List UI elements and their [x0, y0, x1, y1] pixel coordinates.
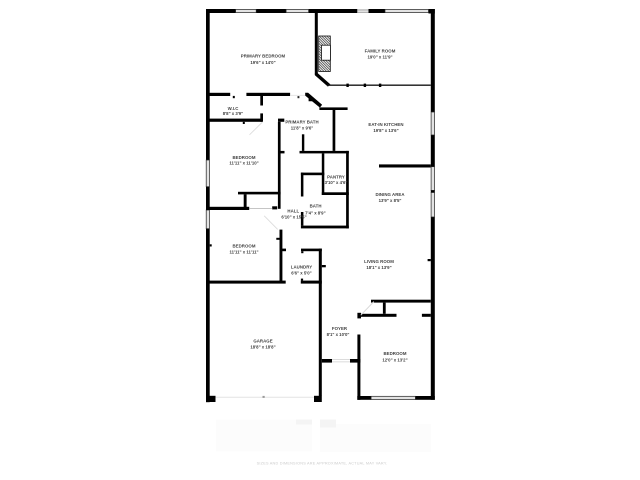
svg-text:GARAGE: GARAGE [253, 339, 272, 344]
svg-text:PANTRY: PANTRY [327, 174, 345, 179]
svg-text:11'11" x 11'10": 11'11" x 11'10" [229, 160, 258, 165]
svg-text:DINING AREA: DINING AREA [375, 192, 405, 197]
svg-text:18'8" x 18'8": 18'8" x 18'8" [250, 345, 275, 350]
svg-text:6'6" x 5'0": 6'6" x 5'0" [291, 271, 311, 276]
svg-text:8'8" x 3'9": 8'8" x 3'9" [223, 111, 243, 116]
svg-text:8'1" x 10'0": 8'1" x 10'0" [327, 332, 350, 337]
svg-text:BATH: BATH [310, 203, 322, 208]
svg-text:PRIMARY BATH: PRIMARY BATH [285, 120, 318, 125]
svg-text:PRIMARY BEDROOM: PRIMARY BEDROOM [241, 54, 286, 59]
svg-text:BEDROOM: BEDROOM [383, 351, 406, 356]
svg-text:18'1" x 13'9": 18'1" x 13'9" [366, 265, 391, 270]
svg-text:13'9" x 8'5": 13'9" x 8'5" [379, 198, 402, 203]
svg-text:19'6" x 14'0": 19'6" x 14'0" [250, 60, 275, 65]
svg-text:19'0" x 11'9": 19'0" x 11'9" [368, 54, 393, 59]
svg-text:11'8" x 9'6": 11'8" x 9'6" [291, 126, 314, 131]
svg-text:SIZES AND DIMENSIONS ARE APPRO: SIZES AND DIMENSIONS ARE APPROXIMATE, AC… [257, 462, 388, 466]
svg-text:BEDROOM: BEDROOM [232, 244, 255, 249]
svg-text:LAUNDRY: LAUNDRY [291, 265, 312, 270]
svg-text:6'10" x 15'5": 6'10" x 15'5" [281, 215, 306, 220]
svg-text:7'4" x 8'9": 7'4" x 8'9" [305, 211, 325, 216]
svg-text:19'8" x 13'6": 19'8" x 13'6" [373, 128, 398, 133]
svg-text:3'10" x 4'6": 3'10" x 4'6" [325, 180, 348, 185]
svg-text:EAT-IN KITCHEN: EAT-IN KITCHEN [368, 122, 403, 127]
svg-text:11'11" x 11'11": 11'11" x 11'11" [229, 250, 258, 255]
svg-text:LIVING ROOM: LIVING ROOM [364, 259, 394, 264]
svg-text:12'0" x 13'2": 12'0" x 13'2" [382, 357, 407, 362]
svg-text:FAMILY ROOM: FAMILY ROOM [365, 49, 396, 54]
svg-text:HALL: HALL [287, 209, 299, 214]
svg-text:FOYER: FOYER [332, 326, 348, 331]
